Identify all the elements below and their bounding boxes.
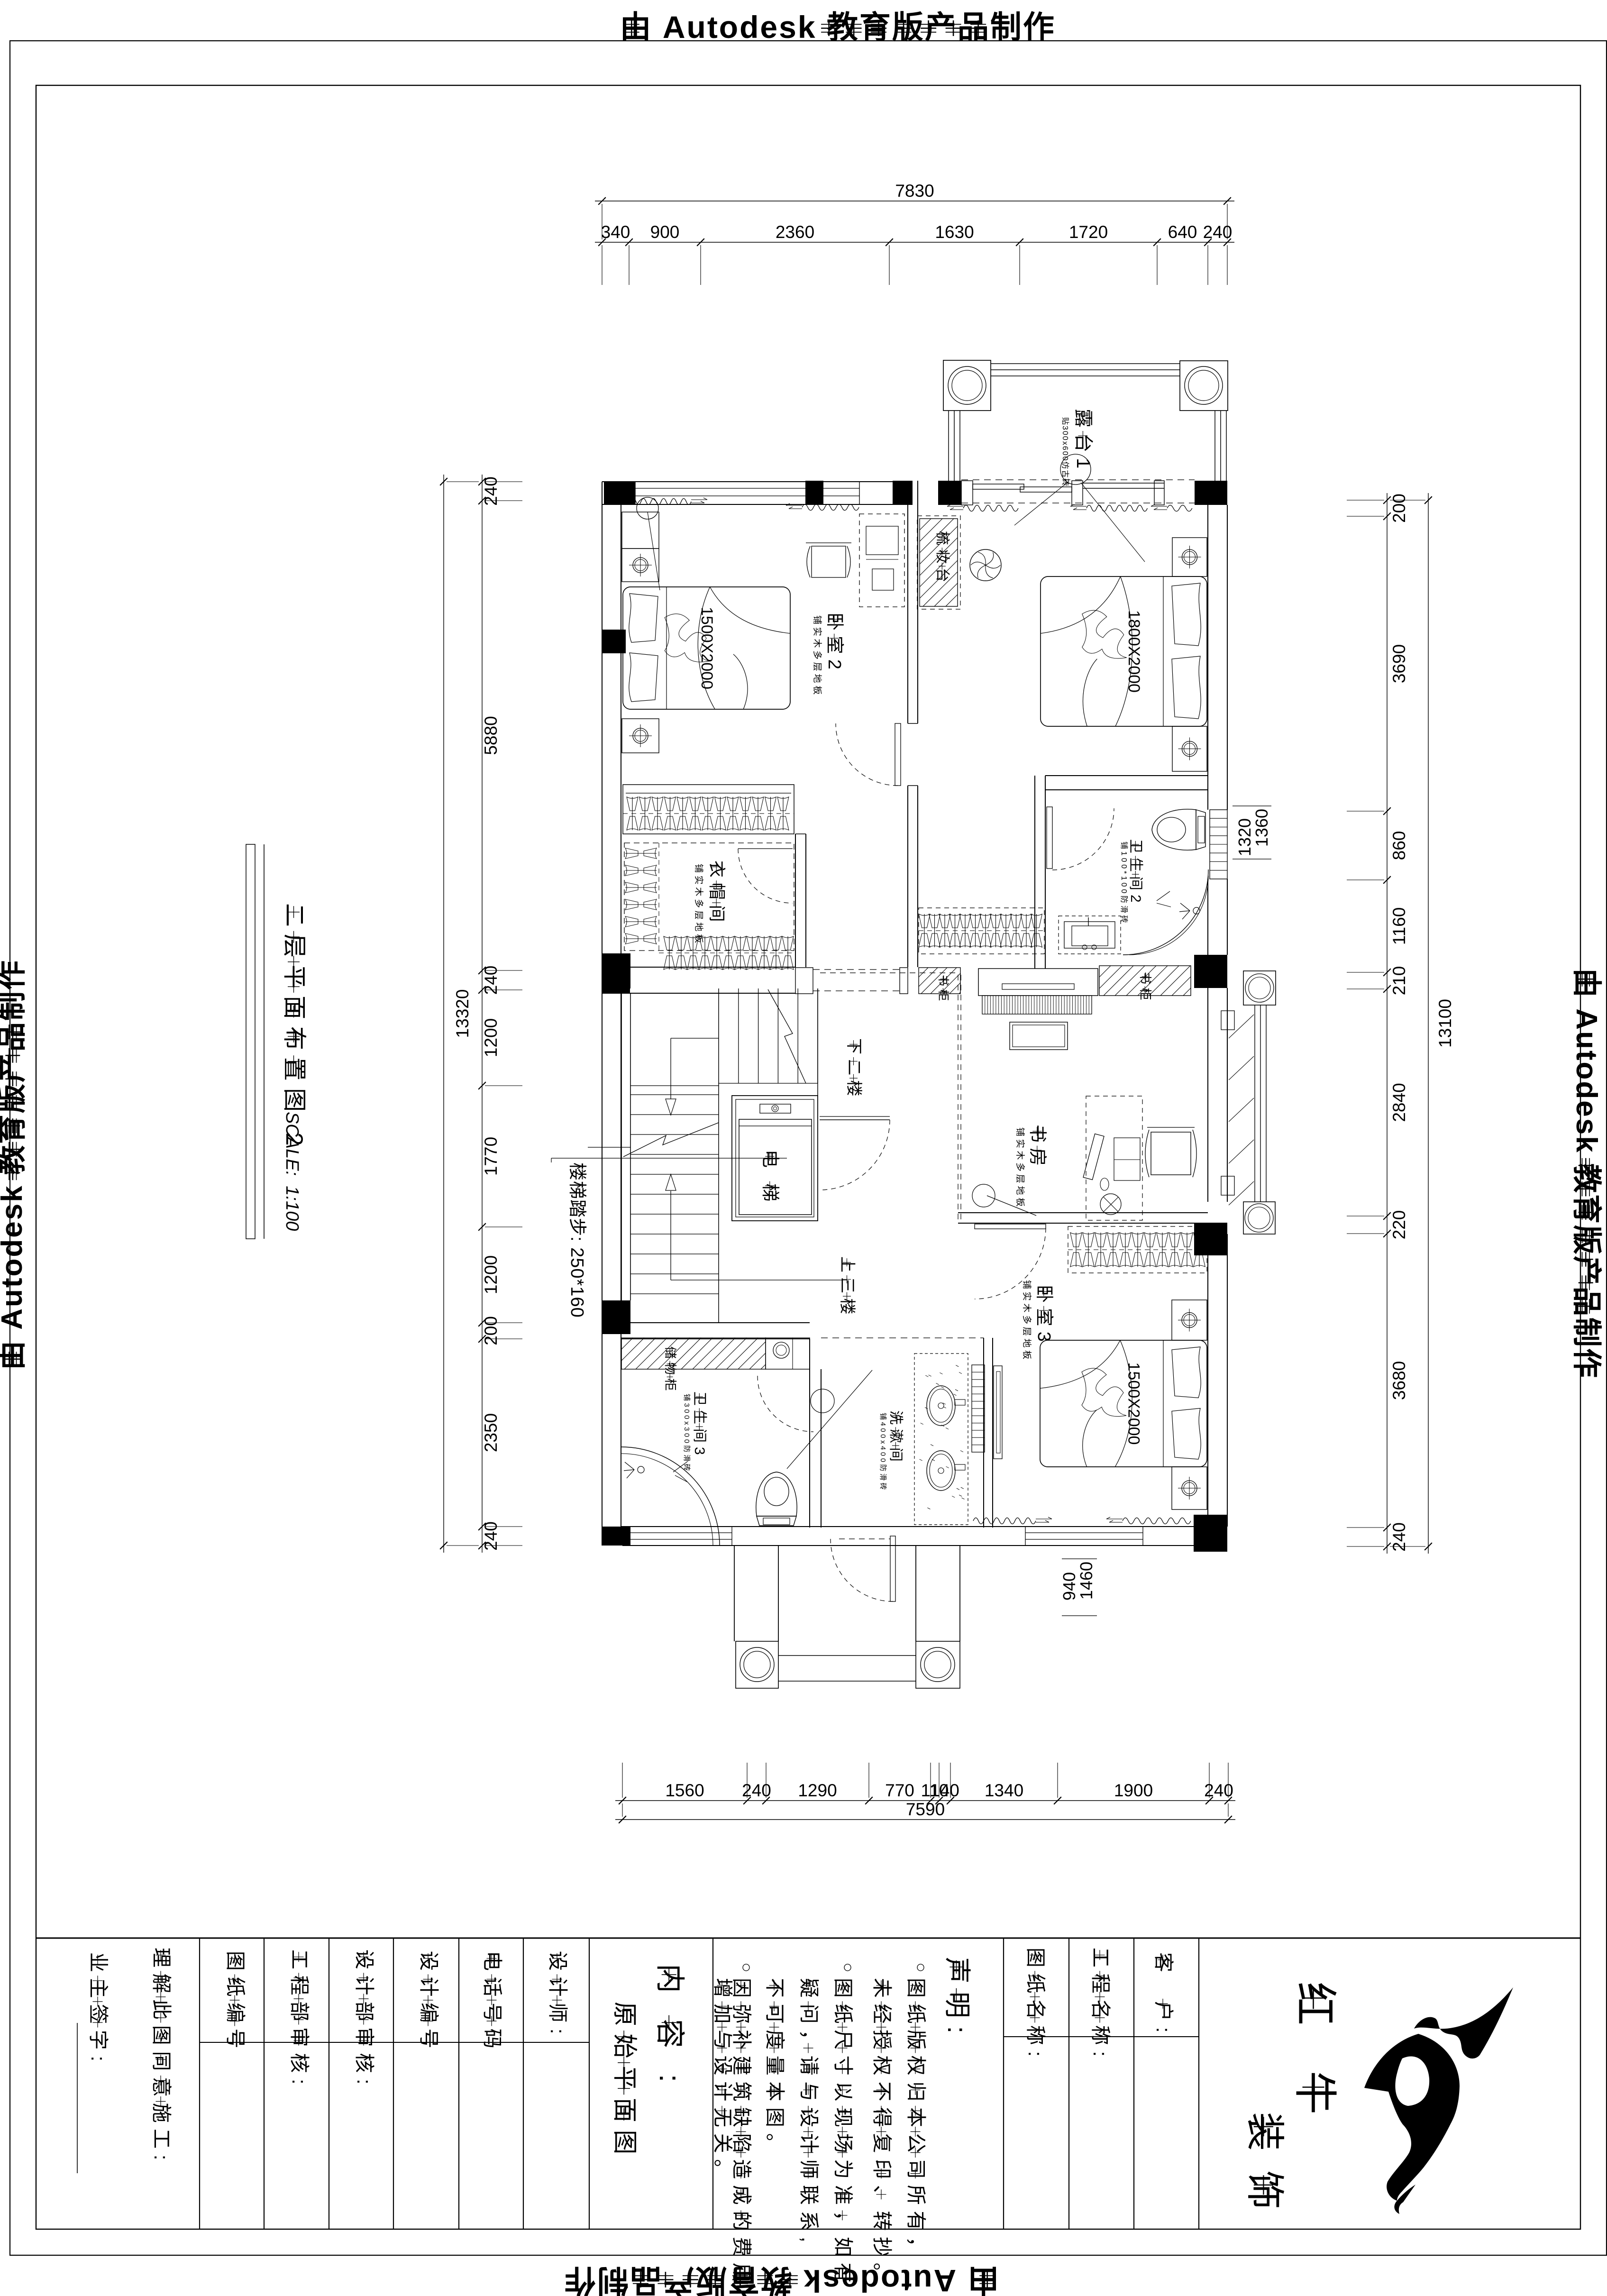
svg-text:7830: 7830 bbox=[895, 181, 934, 201]
svg-text:铺实木多层地板: 铺实木多层地板 bbox=[1015, 1127, 1025, 1209]
svg-text:声明:: 声明: bbox=[942, 1957, 972, 2041]
svg-text:340: 340 bbox=[601, 222, 630, 242]
svg-text:240: 240 bbox=[1389, 1522, 1409, 1552]
svg-text:图纸名称:: 图纸名称: bbox=[1024, 1948, 1047, 2063]
svg-text:图纸版权归本公司所有，: 图纸版权归本公司所有， bbox=[905, 1978, 927, 2263]
svg-text:3680: 3680 bbox=[1389, 1361, 1409, 1400]
svg-text:业主签字:: 业主签字: bbox=[87, 1952, 110, 2067]
svg-text:2840: 2840 bbox=[1389, 1083, 1409, 1122]
svg-text:内 容 :: 内 容 : bbox=[653, 1964, 686, 2091]
svg-text:1200: 1200 bbox=[481, 1255, 501, 1294]
svg-text:客 户:: 客 户: bbox=[1152, 1952, 1175, 2039]
svg-text:1340: 1340 bbox=[985, 1781, 1023, 1800]
svg-text:240: 240 bbox=[742, 1781, 771, 1800]
svg-text:200: 200 bbox=[1389, 494, 1409, 523]
svg-text:1560: 1560 bbox=[665, 1781, 704, 1800]
svg-text:940: 940 bbox=[1059, 1572, 1079, 1601]
svg-text:1320: 1320 bbox=[1235, 818, 1254, 856]
svg-text:储物柜: 储物柜 bbox=[663, 1346, 677, 1394]
svg-text:140: 140 bbox=[930, 1781, 959, 1800]
svg-text:工程名称:: 工程名称: bbox=[1089, 1948, 1112, 2063]
svg-text:2360: 2360 bbox=[776, 222, 814, 242]
svg-text:1500X2000: 1500X2000 bbox=[698, 607, 716, 689]
svg-text:240: 240 bbox=[481, 1521, 501, 1551]
svg-text:7590: 7590 bbox=[906, 1800, 945, 1819]
svg-text:理解此图同意施工:: 理解此图同意施工: bbox=[150, 1948, 173, 2166]
svg-text:铺实木多层地板: 铺实木多层地板 bbox=[694, 864, 704, 946]
svg-text:13100: 13100 bbox=[1435, 999, 1455, 1048]
svg-text:装: 装 bbox=[1243, 2112, 1286, 2163]
svg-text:1720: 1720 bbox=[1069, 222, 1108, 242]
svg-text:设计师:: 设计师: bbox=[547, 1951, 569, 2040]
svg-text:露台1: 露台1 bbox=[1073, 409, 1094, 474]
svg-text:13320: 13320 bbox=[453, 989, 472, 1038]
svg-text:240: 240 bbox=[1204, 1781, 1233, 1800]
svg-text:饰: 饰 bbox=[1243, 2170, 1286, 2221]
svg-text:2350: 2350 bbox=[481, 1413, 501, 1452]
svg-text:设计编号: 设计编号 bbox=[418, 1951, 440, 2054]
svg-text:由 Autodesk 教育版产品制作: 由 Autodesk 教育版产品制作 bbox=[620, 9, 1056, 45]
svg-text:240: 240 bbox=[1203, 222, 1233, 242]
svg-text:5880: 5880 bbox=[481, 716, 501, 755]
svg-text:860: 860 bbox=[1389, 831, 1409, 860]
svg-text:由 Autodesk 教育版产品制作: 由 Autodesk 教育版产品制作 bbox=[0, 959, 28, 1370]
svg-text:贴300x600仿古砖: 贴300x600仿古砖 bbox=[1061, 417, 1069, 487]
svg-text:衣帽间: 衣帽间 bbox=[707, 860, 727, 927]
svg-text:220: 220 bbox=[1389, 1210, 1409, 1240]
svg-text:770: 770 bbox=[885, 1781, 914, 1800]
svg-text:900: 900 bbox=[650, 222, 680, 242]
svg-text:铺实木多层地板: 铺实木多层地板 bbox=[812, 615, 822, 697]
svg-text:红: 红 bbox=[1290, 1982, 1339, 2039]
svg-text:电话号码: 电话号码 bbox=[481, 1951, 503, 2054]
svg-text:1160: 1160 bbox=[1389, 907, 1409, 945]
svg-text:铺400x400防滑砖: 铺400x400防滑砖 bbox=[879, 1413, 887, 1492]
svg-text:1360: 1360 bbox=[1252, 809, 1271, 847]
svg-text:240: 240 bbox=[481, 966, 501, 995]
svg-text:1460: 1460 bbox=[1077, 1562, 1096, 1600]
svg-text:原始平面图: 原始平面图 bbox=[611, 2002, 638, 2162]
svg-text:1200: 1200 bbox=[481, 1018, 501, 1057]
svg-text:由 Autodesk 教育版产品制作: 由 Autodesk 教育版产品制作 bbox=[1570, 968, 1603, 1379]
svg-text:240: 240 bbox=[481, 476, 501, 506]
svg-text:图纸尺寸以现场为准，如有: 图纸尺寸以现场为准，如有 bbox=[832, 1978, 854, 2288]
svg-text:增加与设计无关。: 增加与设计无关。 bbox=[712, 1978, 734, 2185]
svg-text:图纸编号: 图纸编号 bbox=[224, 1951, 247, 2054]
svg-text:不可度量本图。: 不可度量本图。 bbox=[764, 1978, 786, 2159]
svg-text:1800X2000: 1800X2000 bbox=[1125, 610, 1143, 693]
svg-text:铺100*100防滑砖: 铺100*100防滑砖 bbox=[1120, 842, 1128, 925]
svg-text:疑问，请与设计师联系,: 疑问，请与设计师联系, bbox=[798, 1978, 820, 2248]
svg-text:SCALE: 1:100: SCALE: 1:100 bbox=[282, 1112, 302, 1231]
svg-text:铺300x300防滑砖: 铺300x300防滑砖 bbox=[683, 1394, 691, 1473]
svg-text:3690: 3690 bbox=[1389, 644, 1409, 683]
svg-text:210: 210 bbox=[1389, 966, 1409, 996]
svg-text:200: 200 bbox=[481, 1316, 501, 1345]
svg-text:1770: 1770 bbox=[481, 1137, 501, 1176]
svg-text:由 Autodesk 教育版产品制作: 由 Autodesk 教育版产品制作 bbox=[563, 2263, 999, 2296]
svg-text:未经授权不得复印、转抄。: 未经授权不得复印、转抄。 bbox=[871, 1978, 893, 2288]
svg-text:铺实木多层地板: 铺实木多层地板 bbox=[1022, 1280, 1032, 1362]
svg-text:牛: 牛 bbox=[1290, 2071, 1339, 2128]
svg-text:640: 640 bbox=[1168, 222, 1197, 242]
svg-text:1630: 1630 bbox=[935, 222, 974, 242]
svg-text:楼梯踏步: 250*160: 楼梯踏步: 250*160 bbox=[567, 1162, 587, 1318]
svg-text:1500X2000: 1500X2000 bbox=[1125, 1363, 1143, 1445]
svg-text:1290: 1290 bbox=[798, 1781, 837, 1800]
svg-text:1900: 1900 bbox=[1114, 1781, 1153, 1800]
